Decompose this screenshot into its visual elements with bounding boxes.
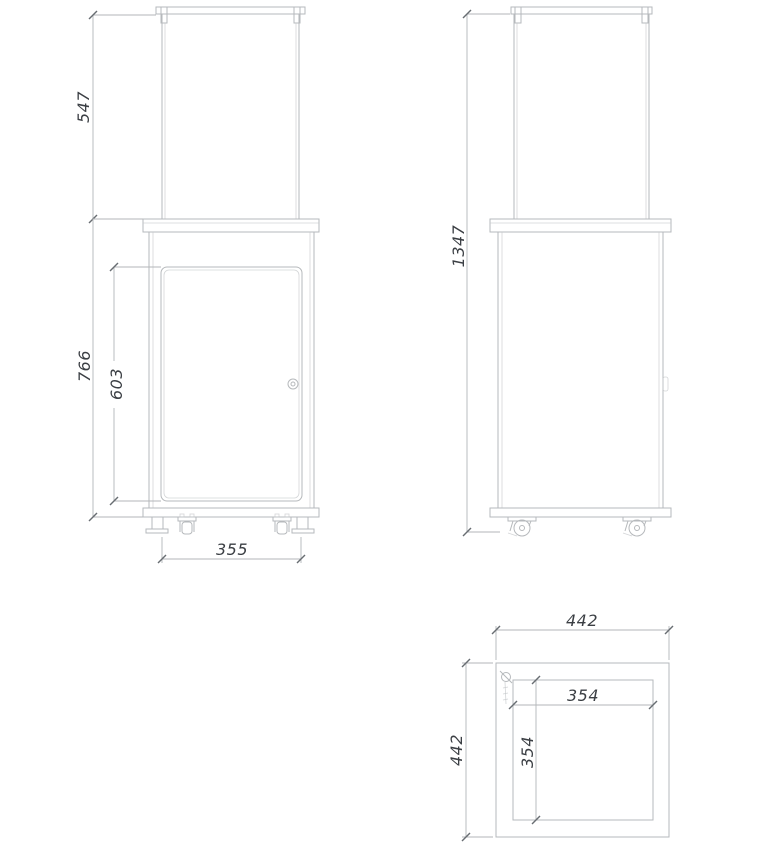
front-lid [143,219,319,232]
dim-glass-height: 547 [74,11,156,223]
top-latch-detail [500,671,512,704]
front-base-plate [143,508,319,517]
front-foot-right-pad [292,529,314,533]
front-door [161,267,302,501]
side-glass-top-cap [511,7,652,23]
side-caster-right-hub [635,526,640,531]
side-door-handle-profile [663,377,668,391]
drawing-svg: 547 766 603 355 [0,0,781,844]
side-base-and-casters [490,508,671,536]
dim-total-height: 1347 [449,10,510,536]
front-caster-right-wheel [277,522,287,534]
dim-label-glass-height: 547 [74,91,93,123]
top-latch-mark1 [503,687,508,688]
side-lid [490,219,671,232]
side-caster-left [508,517,536,536]
dim-label-body-height: 766 [75,350,94,382]
front-cabinet-lid [143,219,319,232]
side-caster-left-fork1 [510,521,513,531]
top-latch-mark2 [503,693,508,694]
front-caster-left [178,514,196,534]
front-cap-bar [156,7,305,14]
front-caster-right-plate [273,517,291,521]
front-caster-left-plate [178,517,196,521]
side-cap-bar [511,7,652,14]
dim-label-door-height: 603 [107,368,126,400]
front-foot-left-pad [146,529,168,533]
side-cabinet-lid [490,219,671,232]
side-caster-right [623,517,651,536]
front-glass-top-cap [156,7,305,23]
dim-top-inner-depth: 354 [518,676,540,824]
top-view: 442 442 354 354 [447,611,673,841]
door-lock-center-icon [291,382,295,386]
side-view: 1347 [449,7,671,536]
dim-label-top-inner-depth: 354 [518,736,537,768]
front-cabinet-body [149,232,314,508]
front-foot-left [152,517,163,529]
front-glass-panel [162,14,299,219]
side-glass-panel [514,14,649,219]
dim-feet-spacing: 355 [158,537,305,563]
front-door-outline [161,267,302,501]
dim-label-total-height: 1347 [449,224,468,267]
front-view: 547 766 603 355 [74,7,319,563]
side-cap-clamp-right [642,7,648,23]
dim-top-outer-width: 442 [492,611,673,660]
side-caster-right-fork1 [625,521,628,531]
dim-label-feet-spacing: 355 [216,540,248,559]
side-caster-left-wheel [514,520,530,536]
front-door-inner-line [164,270,299,498]
top-latch-mark3 [503,699,508,700]
dim-label-top-outer-depth: 442 [447,734,466,766]
dim-label-top-outer-width: 442 [566,611,598,630]
dim-top-outer-depth: 442 [447,659,493,841]
dim-label-top-inner-width: 354 [567,686,599,705]
side-base-plate [490,508,671,517]
dim-top-inner-width: 354 [509,686,657,709]
top-latch-leader [505,682,506,704]
technical-drawing-canvas: 547 766 603 355 [0,0,781,844]
side-cabinet-body [498,232,668,508]
front-base-and-feet [143,508,319,534]
front-foot-right [297,517,308,529]
door-lock-icon [288,379,298,389]
side-cap-clamp-left [515,7,521,23]
side-caster-right-wheel [629,520,645,536]
front-caster-right [273,514,291,534]
front-caster-left-wheel [182,522,192,534]
side-caster-left-hub [520,526,525,531]
